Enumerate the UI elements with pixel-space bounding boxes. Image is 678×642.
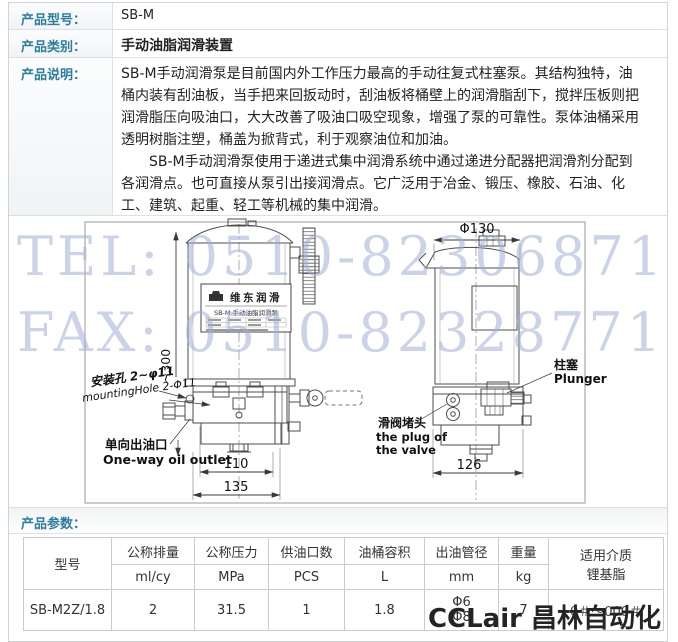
col-header-ports: 供油口数 — [269, 538, 345, 565]
col-header-pressure: 公称压力 — [195, 538, 269, 565]
product-model-value: SB-M — [113, 3, 667, 29]
plug-label-en2: the valve — [376, 443, 436, 457]
product-category-value: 手动油脂润滑装置 — [113, 30, 667, 57]
outlet-label-en: One-way oil outlet — [103, 452, 232, 467]
col-header-model: 型号 — [24, 538, 112, 590]
unit-displacement: ml/cy — [112, 565, 195, 590]
product-model-label: 产品型号： — [9, 3, 113, 29]
product-description-text: SB-M手动润滑泵是目前国内外工作压力最高的手动往复式柱塞泵。其结构独特，油桶内… — [113, 58, 667, 215]
product-sheet: 产品型号： SB-M 产品类别： 手动油脂润滑装置 产品说明： SB-M手动润滑… — [8, 2, 668, 642]
col-header-displacement: 公称排量 — [112, 538, 195, 565]
technical-drawing: 维东润滑 SB-M 手动油脂润滑泵 — [9, 216, 667, 507]
nameplate-brand: 维东润滑 — [230, 291, 282, 304]
col-header-capacity: 油桶容积 — [345, 538, 425, 565]
cclair-brand-watermark: CCLair 昌林自动化 — [428, 598, 661, 635]
description-paragraph-1: SB-M手动润滑泵是目前国内外工作压力最高的手动往复式柱塞泵。其结构独特，油桶内… — [121, 63, 643, 151]
dim-126-label: 126 — [457, 458, 482, 473]
cell-pressure: 31.5 — [195, 590, 269, 631]
cell-ports: 1 — [269, 590, 345, 631]
plug-label-cn: 滑阀堵头 — [378, 415, 426, 430]
unit-capacity: L — [345, 565, 425, 590]
drawing-labels: ~300 Φ130 110 135 126 安装孔 2~φ11 mounting… — [79, 222, 606, 495]
plunger-label-en: Plunger — [554, 372, 607, 386]
col-header-weight: 重量 — [499, 538, 549, 565]
product-description-label: 产品说明： — [9, 58, 113, 215]
nameplate-model: SB-M 手动油脂润滑泵 — [214, 308, 279, 317]
col-header-pipe: 出油管径 — [425, 538, 499, 565]
nameplate: 维东润滑 SB-M 手动油脂润滑泵 — [201, 284, 291, 332]
cell-capacity: 1.8 — [345, 590, 425, 631]
plug-label-en1: the plug of — [376, 430, 448, 444]
outlet-label-cn: 单向出油口 — [105, 437, 168, 452]
row-product-description: 产品说明： SB-M手动润滑泵是目前国内外工作压力最高的手动往复式柱塞泵。其结构… — [9, 58, 667, 216]
unit-pipe: mm — [425, 565, 499, 590]
plunger-label-cn: 柱塞 — [554, 357, 579, 372]
unit-pressure: MPa — [195, 565, 269, 590]
dim-top-dia-label: Φ130 — [459, 222, 494, 237]
unit-ports: PCS — [269, 565, 345, 590]
unit-weight: kg — [499, 565, 549, 590]
row-product-category: 产品类别： 手动油脂润滑装置 — [9, 30, 667, 58]
description-paragraph-2: SB-M手动润滑泵使用于递进式集中润滑系统中通过递进分配器把润滑剂分配到各润滑点… — [121, 151, 643, 217]
cell-model: SB-M2Z/1.8 — [24, 590, 112, 631]
row-product-model: 产品型号： SB-M — [9, 3, 667, 30]
technical-drawing-area: 维东润滑 SB-M 手动油脂润滑泵 — [9, 216, 667, 508]
product-category-label: 产品类别： — [9, 30, 113, 57]
dim-135-label: 135 — [224, 480, 249, 495]
cell-displacement: 2 — [112, 590, 195, 631]
product-params-label: 产品参数： — [9, 508, 667, 534]
col-header-medium: 适用介质 锂基脂 — [549, 538, 664, 590]
